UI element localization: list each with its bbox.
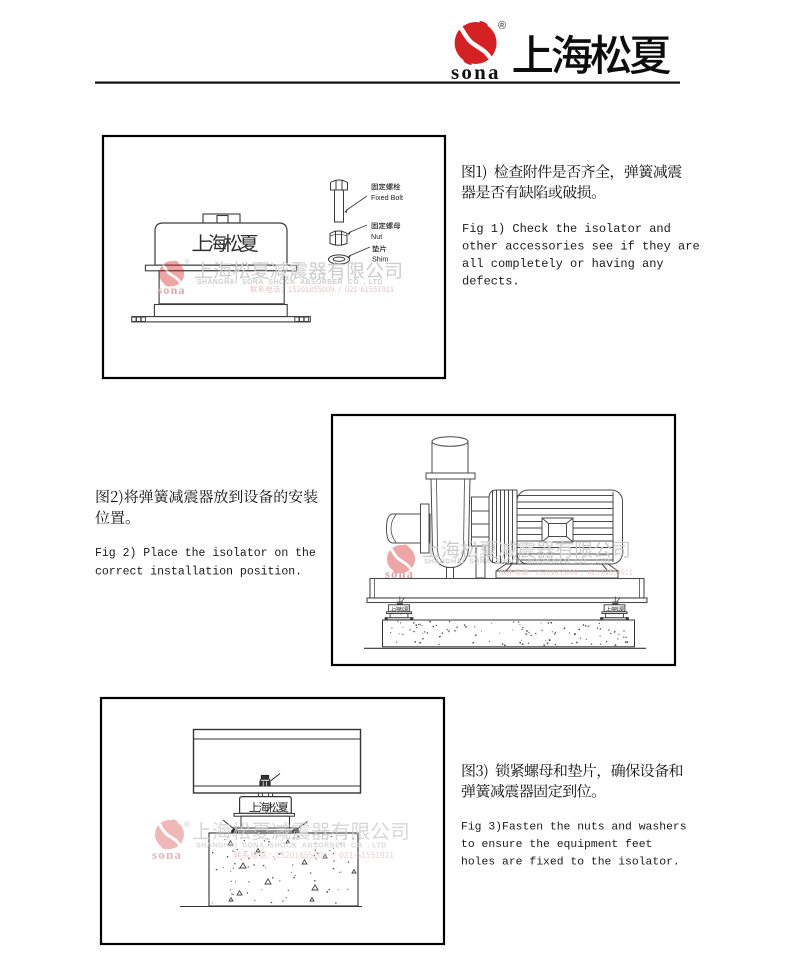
svg-text:Fig 3)Fasten the nuts and wash: Fig 3)Fasten the nuts and washersto ensu… — [461, 822, 687, 869]
svg-text:Nut: Nut — [371, 232, 382, 241]
svg-text:sona: sona — [385, 567, 414, 581]
svg-text:sona: sona — [152, 847, 182, 862]
svg-text:®: ® — [184, 820, 190, 829]
svg-text:®: ® — [185, 258, 191, 266]
svg-text:SHANGHAI SONA SHOCK ABSORBE: SHANGHAI SONA SHOCK ABSORBER CO. , LTD — [197, 279, 383, 286]
svg-text:Fig 2) Place the isolator on t: Fig 2) Place the isolator on thecorrect … — [95, 547, 316, 579]
svg-text:SHANGHAI SONA SHOCK ABSORBE: SHANGHAI SONA SHOCK ABSORBER CO. , LTD — [196, 842, 387, 850]
svg-text:Fig 1) Check the isolator ando: Fig 1) Check the isolator andother acces… — [462, 222, 700, 288]
svg-text:®: ® — [498, 20, 506, 32]
svg-text:sona: sona — [158, 283, 186, 297]
svg-text:SHANGHAI SONA SHOCK ABSORBE: SHANGHAI SONA SHOCK ABSORBER CO. , LTD — [424, 559, 610, 566]
svg-text:Shim: Shim — [372, 255, 388, 264]
svg-text:sona: sona — [451, 60, 501, 84]
svg-text:Fixed Bolt: Fixed Bolt — [371, 193, 403, 202]
